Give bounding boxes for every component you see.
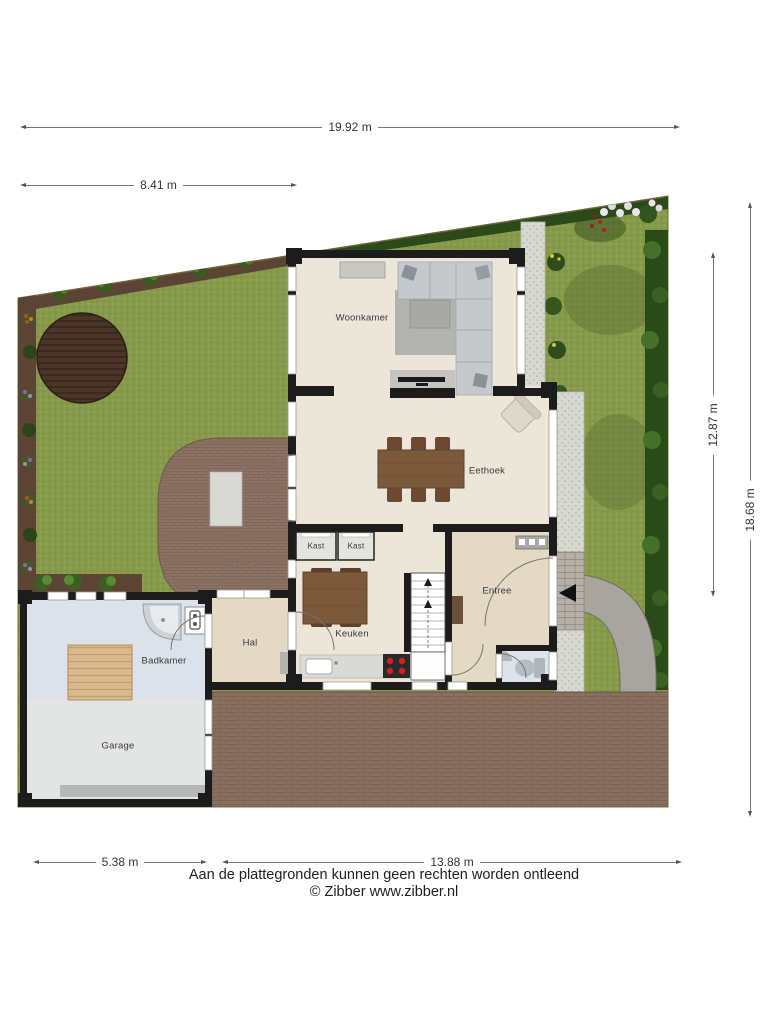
sideboard bbox=[340, 262, 385, 278]
coffee-table bbox=[410, 300, 450, 328]
dimension-right-inner: 12.87 m bbox=[707, 252, 719, 597]
soil-border-left bbox=[18, 295, 36, 594]
dim-arrow-right-icon bbox=[291, 183, 297, 187]
dim-arrow-right-icon bbox=[674, 125, 680, 129]
gravel-path-southeast bbox=[556, 392, 584, 692]
dimension-top-total: 19.92 m bbox=[20, 122, 680, 132]
understairs-closet bbox=[411, 652, 445, 680]
stairs bbox=[411, 573, 445, 680]
dimension-right-outer: 18.68 m bbox=[744, 202, 756, 817]
room-label-eethoek: Eethoek bbox=[469, 466, 505, 477]
tv-unit bbox=[390, 370, 455, 388]
room-label-badkamer: Badkamer bbox=[142, 656, 187, 667]
room-label-entree: Entree bbox=[482, 586, 511, 597]
driveway bbox=[212, 692, 668, 807]
floorplan-page: Woonkamer Eethoek Kast Kast Keuken Hal E… bbox=[0, 0, 768, 1024]
dimension-top-left: 8.41 m bbox=[20, 180, 297, 190]
dim-arrow-down-icon bbox=[711, 591, 715, 597]
room-label-kast-2: Kast bbox=[348, 542, 365, 551]
hall-cabinet bbox=[452, 596, 463, 624]
room-label-kast-1: Kast bbox=[308, 542, 325, 551]
room-label-garage: Garage bbox=[102, 741, 135, 752]
room-label-keuken: Keuken bbox=[335, 629, 368, 640]
dim-arrow-right-icon bbox=[676, 860, 682, 864]
hal-radiator bbox=[280, 652, 288, 674]
doormat bbox=[210, 472, 242, 526]
kitchen-counter bbox=[300, 654, 412, 678]
credit-text: © Zibber www.zibber.nl bbox=[0, 884, 768, 901]
kitchen-table-group bbox=[303, 568, 367, 627]
footer: Aan de plattegronden kunnen geen rechten… bbox=[0, 867, 768, 901]
room-label-hal: Hal bbox=[243, 638, 258, 649]
dim-arrow-right-icon bbox=[201, 860, 207, 864]
stove bbox=[383, 654, 410, 678]
room-label-woonkamer: Woonkamer bbox=[336, 313, 389, 324]
entree-radiator bbox=[516, 536, 548, 549]
dim-arrow-down-icon bbox=[748, 811, 752, 817]
dimension-bottom-left: 5.38 m bbox=[33, 857, 207, 867]
disclaimer-text: Aan de plattegronden kunnen geen rechten… bbox=[0, 867, 768, 884]
garden-deck bbox=[37, 313, 127, 403]
sauna-bench bbox=[68, 645, 132, 700]
dimension-bottom-right: 13.88 m bbox=[222, 857, 682, 867]
garage-door-strip bbox=[60, 785, 205, 797]
